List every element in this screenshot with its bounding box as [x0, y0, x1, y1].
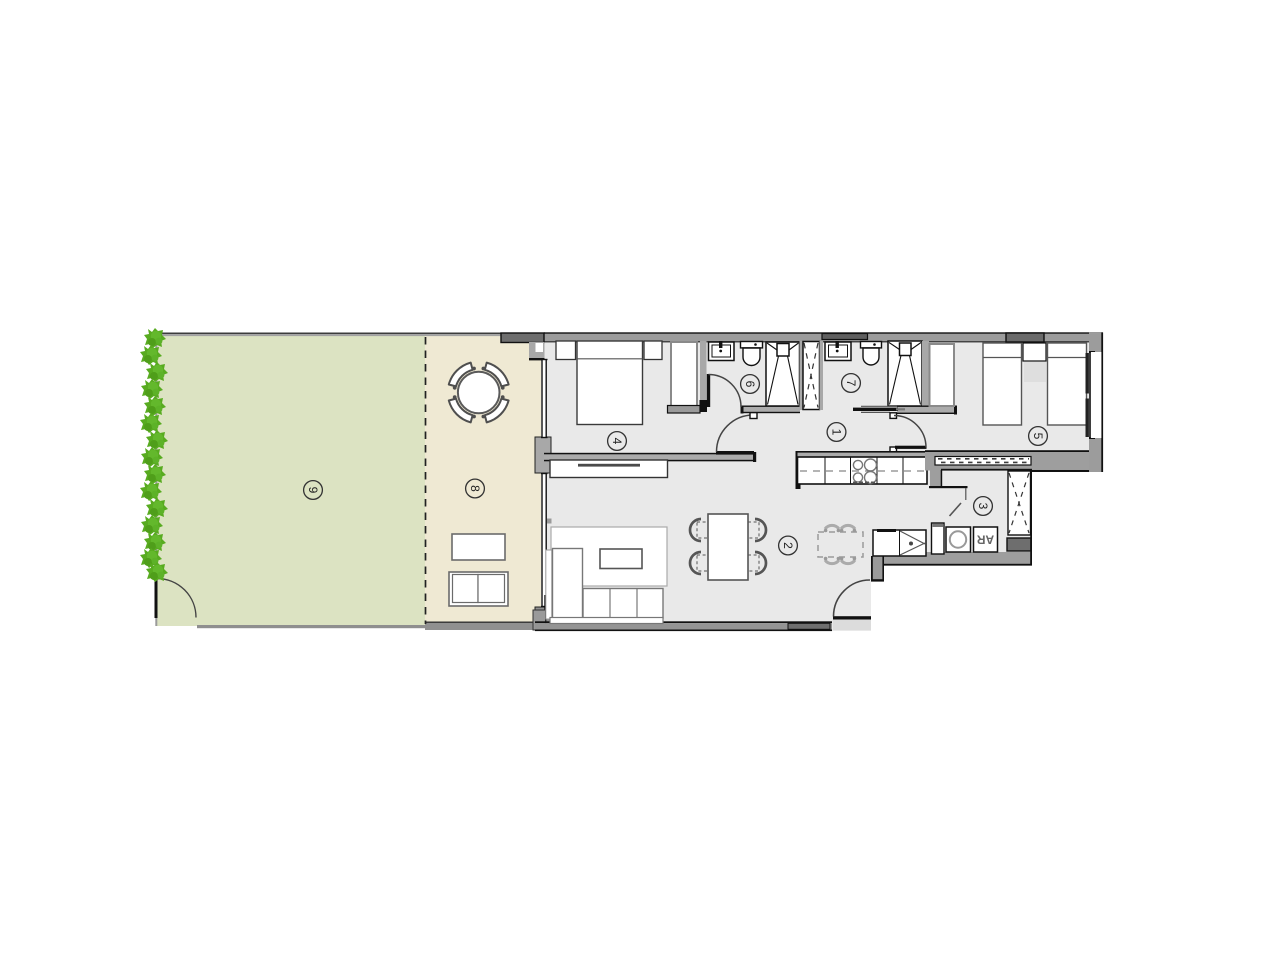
- svg-text:4: 4: [610, 438, 624, 445]
- svg-text:9: 9: [306, 487, 320, 494]
- svg-text:6: 6: [743, 381, 757, 388]
- svg-text:2: 2: [781, 542, 795, 549]
- svg-text:3: 3: [976, 503, 990, 510]
- svg-text:5: 5: [1031, 433, 1045, 440]
- svg-text:1: 1: [830, 429, 844, 436]
- svg-text:8: 8: [468, 485, 482, 492]
- svg-text:7: 7: [844, 380, 858, 387]
- svg-text:AR: AR: [977, 533, 995, 547]
